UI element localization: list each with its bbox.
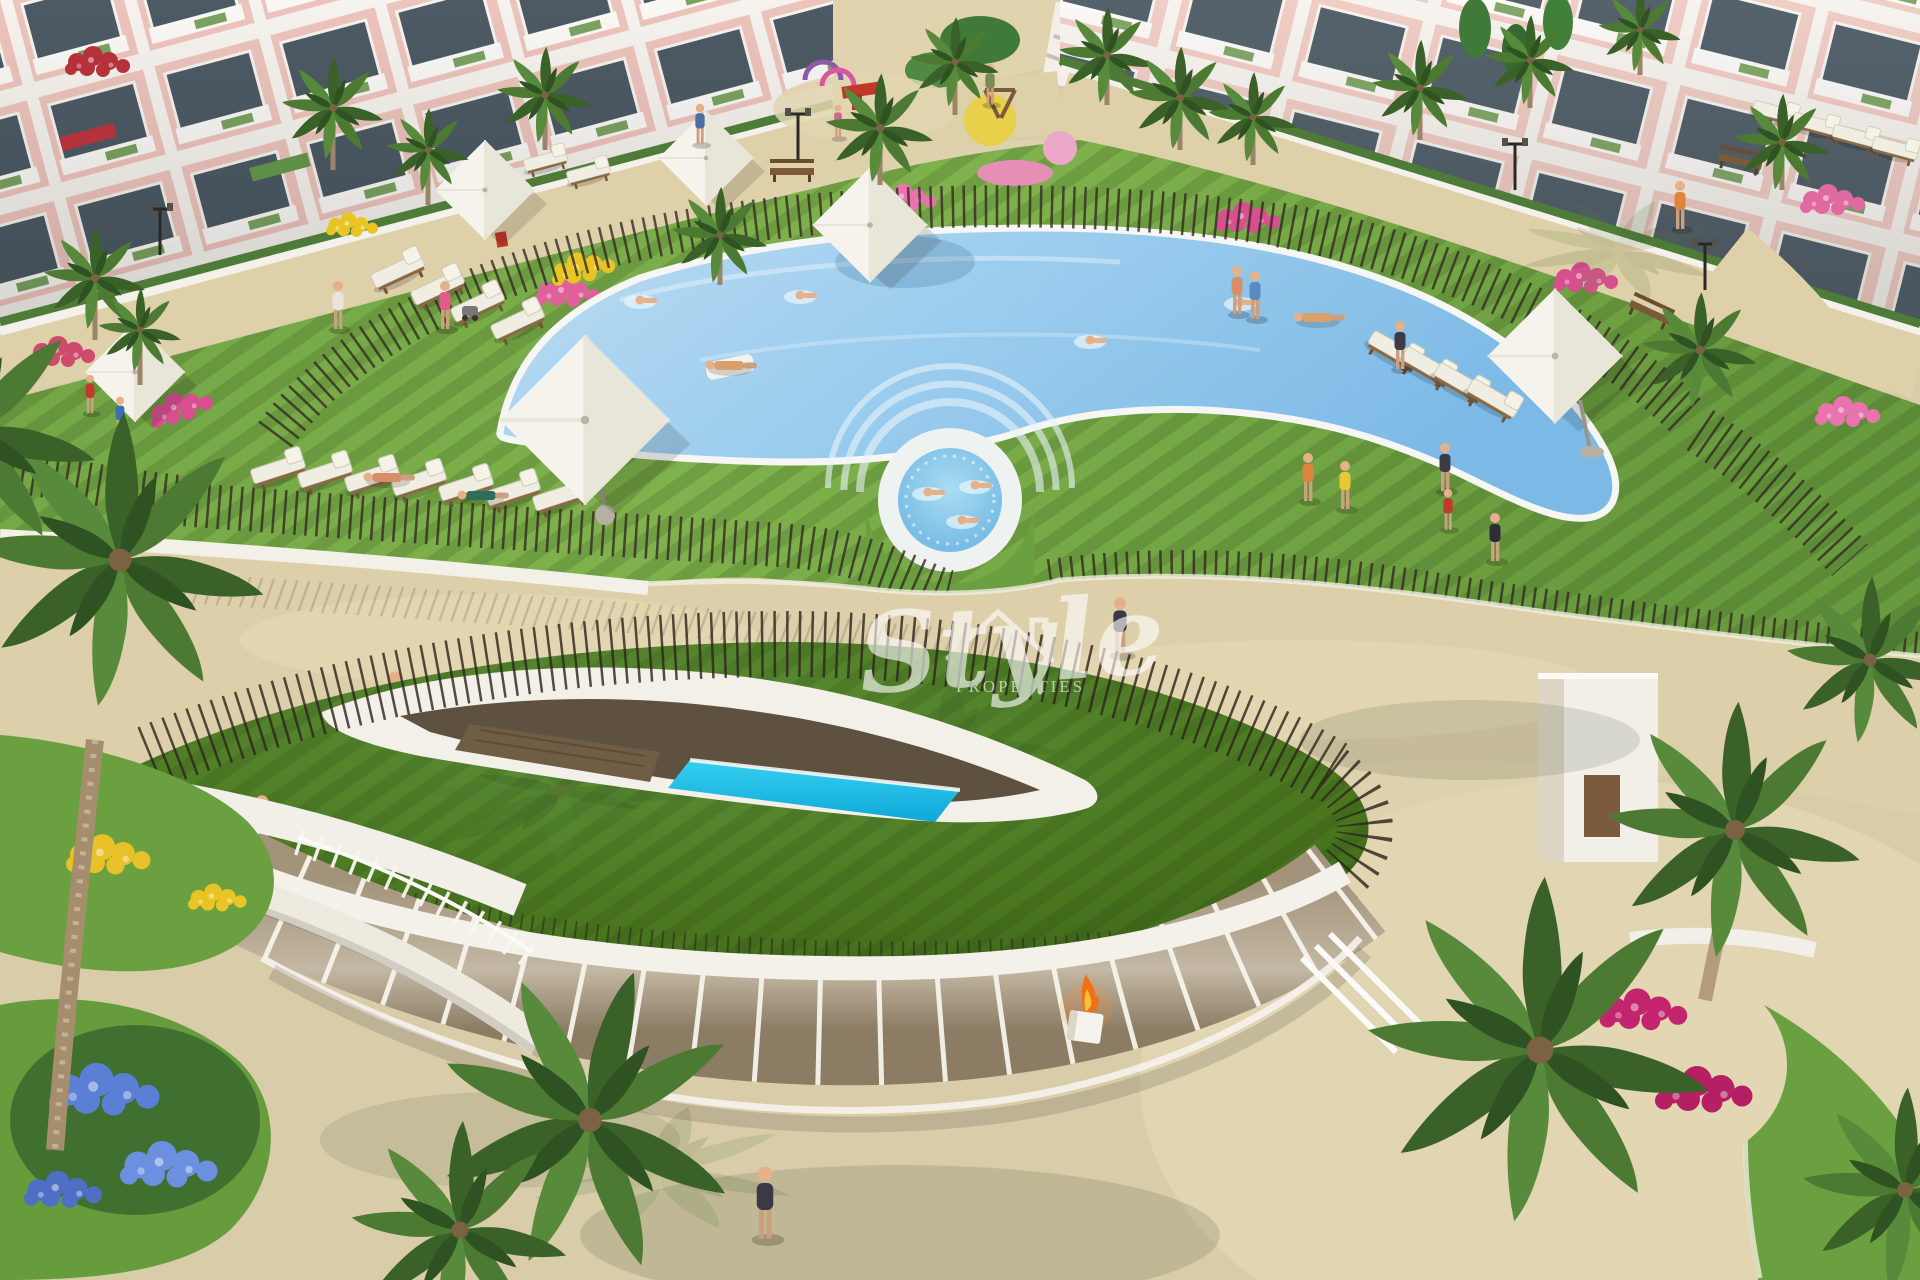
kids-round-pool bbox=[878, 428, 1022, 572]
rubber-pad-pink bbox=[1043, 131, 1077, 165]
kids-pool-water bbox=[898, 448, 1002, 552]
watermark-script-text: Style bbox=[854, 569, 1168, 719]
kiosk-door bbox=[1584, 775, 1620, 837]
flower-ring bbox=[977, 160, 1053, 186]
cypress-tree bbox=[1459, 0, 1491, 58]
watermark-caps-text: PROPERTIES bbox=[956, 677, 1085, 696]
render-scene: Style PROPERTIES bbox=[0, 0, 1920, 1280]
property-render-image: Style PROPERTIES bbox=[0, 0, 1920, 1280]
watermark: Style PROPERTIES bbox=[854, 569, 1168, 719]
